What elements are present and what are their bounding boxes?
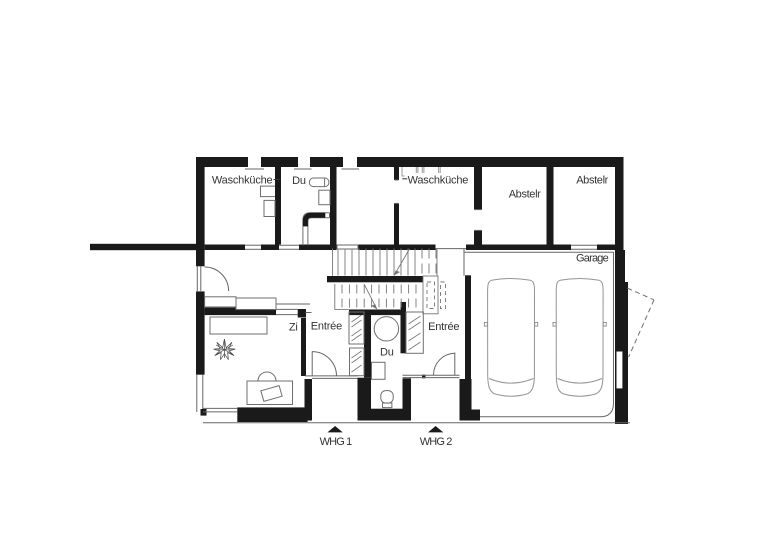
svg-text:Waschküche: Waschküche: [408, 174, 469, 186]
svg-text:WHG 1: WHG 1: [320, 436, 353, 448]
svg-text:Zi: Zi: [289, 322, 298, 334]
svg-text:Entrée: Entrée: [428, 321, 459, 333]
svg-text:Du: Du: [292, 175, 306, 187]
svg-text:Abstelr: Abstelr: [509, 189, 541, 201]
svg-text:Entrée: Entrée: [311, 321, 342, 333]
svg-text:WHG 2: WHG 2: [420, 436, 453, 448]
svg-text:Du: Du: [380, 347, 394, 359]
svg-text:Abstelr: Abstelr: [576, 175, 608, 187]
svg-text:Garage: Garage: [576, 253, 609, 265]
svg-text:Waschküche: Waschküche: [212, 174, 273, 186]
